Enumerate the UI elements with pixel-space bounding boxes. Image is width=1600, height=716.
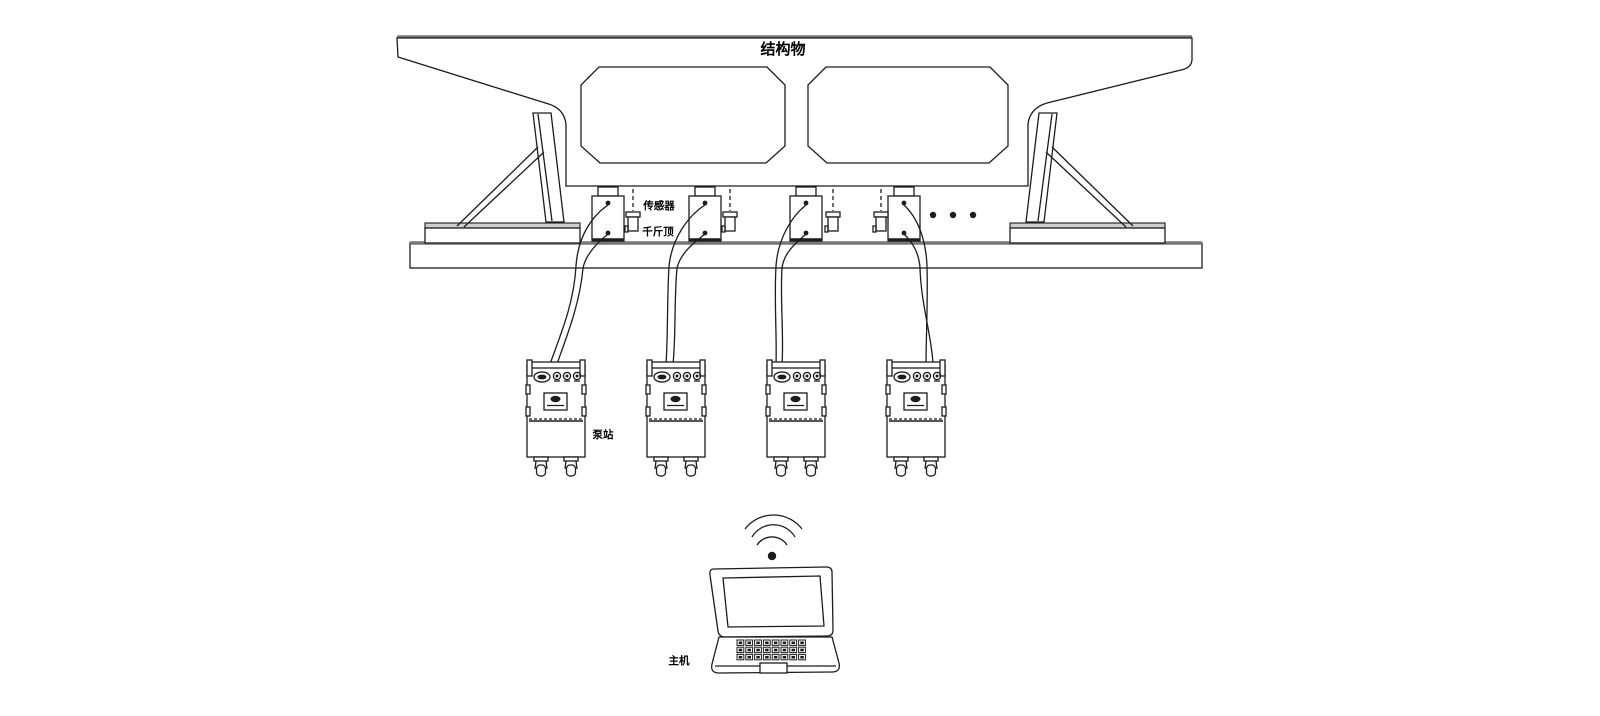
sensor-1 bbox=[625, 189, 640, 232]
ellipsis-dots-icon bbox=[930, 212, 976, 218]
jacks-group bbox=[592, 187, 920, 241]
jack-label: 千斤顶 bbox=[642, 225, 674, 238]
pump-station-3 bbox=[766, 360, 826, 476]
laptop-touchpad bbox=[760, 663, 787, 673]
pump-station-label: 泵站 bbox=[593, 428, 614, 441]
diagram-canvas: 结构物 传感器 千斤顶 泵站 主机 bbox=[0, 0, 1600, 716]
support-right bbox=[1010, 113, 1165, 243]
sensor-2 bbox=[722, 189, 737, 232]
sensor-4 bbox=[873, 189, 888, 232]
ground-beam bbox=[410, 243, 1202, 268]
structure-label: 结构物 bbox=[760, 40, 805, 58]
jack-4 bbox=[888, 187, 920, 241]
pump-station-4 bbox=[886, 360, 946, 476]
wifi-signal-icon bbox=[745, 515, 802, 560]
host-label: 主机 bbox=[669, 654, 690, 667]
laptop-screen bbox=[723, 576, 824, 627]
sensor-3 bbox=[825, 189, 840, 232]
structure-girder bbox=[397, 37, 1192, 186]
pump-station-1 bbox=[526, 360, 586, 476]
support-left bbox=[425, 113, 580, 243]
sensor-label: 传感器 bbox=[642, 199, 675, 212]
laptop bbox=[710, 567, 840, 673]
pump-stations-group bbox=[526, 360, 946, 476]
jack-3 bbox=[790, 187, 822, 241]
girder-outline bbox=[397, 38, 1192, 186]
pump-station-2 bbox=[646, 360, 706, 476]
